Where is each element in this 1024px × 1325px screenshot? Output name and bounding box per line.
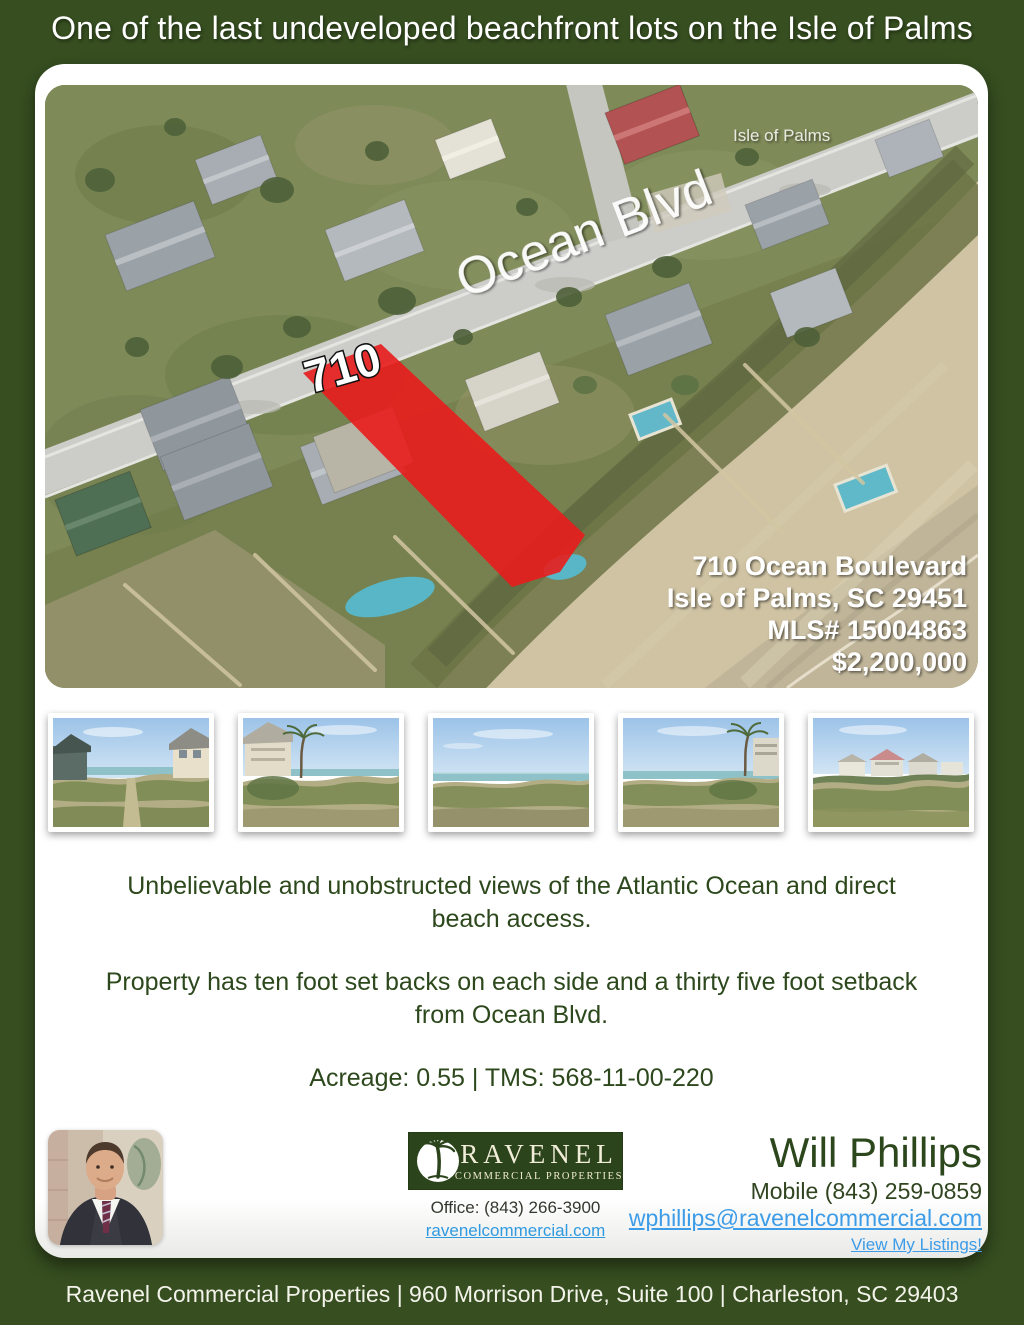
description-paragraph-2: Property has ten foot set backs on each … <box>35 966 988 1032</box>
description-paragraph-1: Unbelievable and unobstructed views of t… <box>35 870 988 936</box>
beachfront-houses-photo <box>813 718 969 827</box>
property-price: $2,200,000 <box>832 647 967 677</box>
agent-name: Will Phillips <box>562 1130 982 1176</box>
gallery-thumb-3[interactable] <box>428 713 594 832</box>
property-mls: MLS# 15004863 <box>767 615 967 645</box>
acreage-tms-line: Acreage: 0.55 | TMS: 568-11-00-220 <box>35 1064 988 1093</box>
footer-address: Ravenel Commercial Properties | 960 Morr… <box>0 1281 1024 1308</box>
listing-card: 710 Ocean Blvd Isle of Palms 710 Ocean B… <box>35 64 988 1258</box>
agent-photo <box>48 1130 163 1245</box>
area-label: Isle of Palms <box>733 126 830 145</box>
agent-contact-block: Will Phillips Mobile (843) 259-0859 wphi… <box>562 1130 982 1256</box>
dune-house-photo <box>243 718 399 827</box>
aerial-photo: 710 Ocean Blvd Isle of Palms 710 Ocean B… <box>45 85 978 688</box>
property-address-line2: Isle of Palms, SC 29451 <box>667 583 967 613</box>
open-dunes-photo <box>433 718 589 827</box>
gallery-thumb-4[interactable] <box>618 713 784 832</box>
flyer-page: One of the last undeveloped beachfront l… <box>0 0 1024 1325</box>
gallery-thumb-2[interactable] <box>238 713 404 832</box>
page-title: One of the last undeveloped beachfront l… <box>0 10 1024 47</box>
dunes-palm-walkover-photo <box>623 718 779 827</box>
beach-path-photo <box>53 718 209 827</box>
agent-portrait-graphic <box>48 1130 163 1245</box>
gallery-thumb-1[interactable] <box>48 713 214 832</box>
gallery-thumb-5[interactable] <box>808 713 974 832</box>
photo-gallery <box>48 713 978 832</box>
agent-email-link[interactable]: wphillips@ravenelcommercial.com <box>562 1205 982 1232</box>
view-listings-link[interactable]: View My Listings! <box>562 1234 982 1256</box>
agent-mobile-phone: Mobile (843) 259-0859 <box>562 1178 982 1205</box>
property-address-line1: 710 Ocean Boulevard <box>692 551 967 581</box>
aerial-photo-graphic: 710 Ocean Blvd Isle of Palms 710 Ocean B… <box>45 85 978 688</box>
